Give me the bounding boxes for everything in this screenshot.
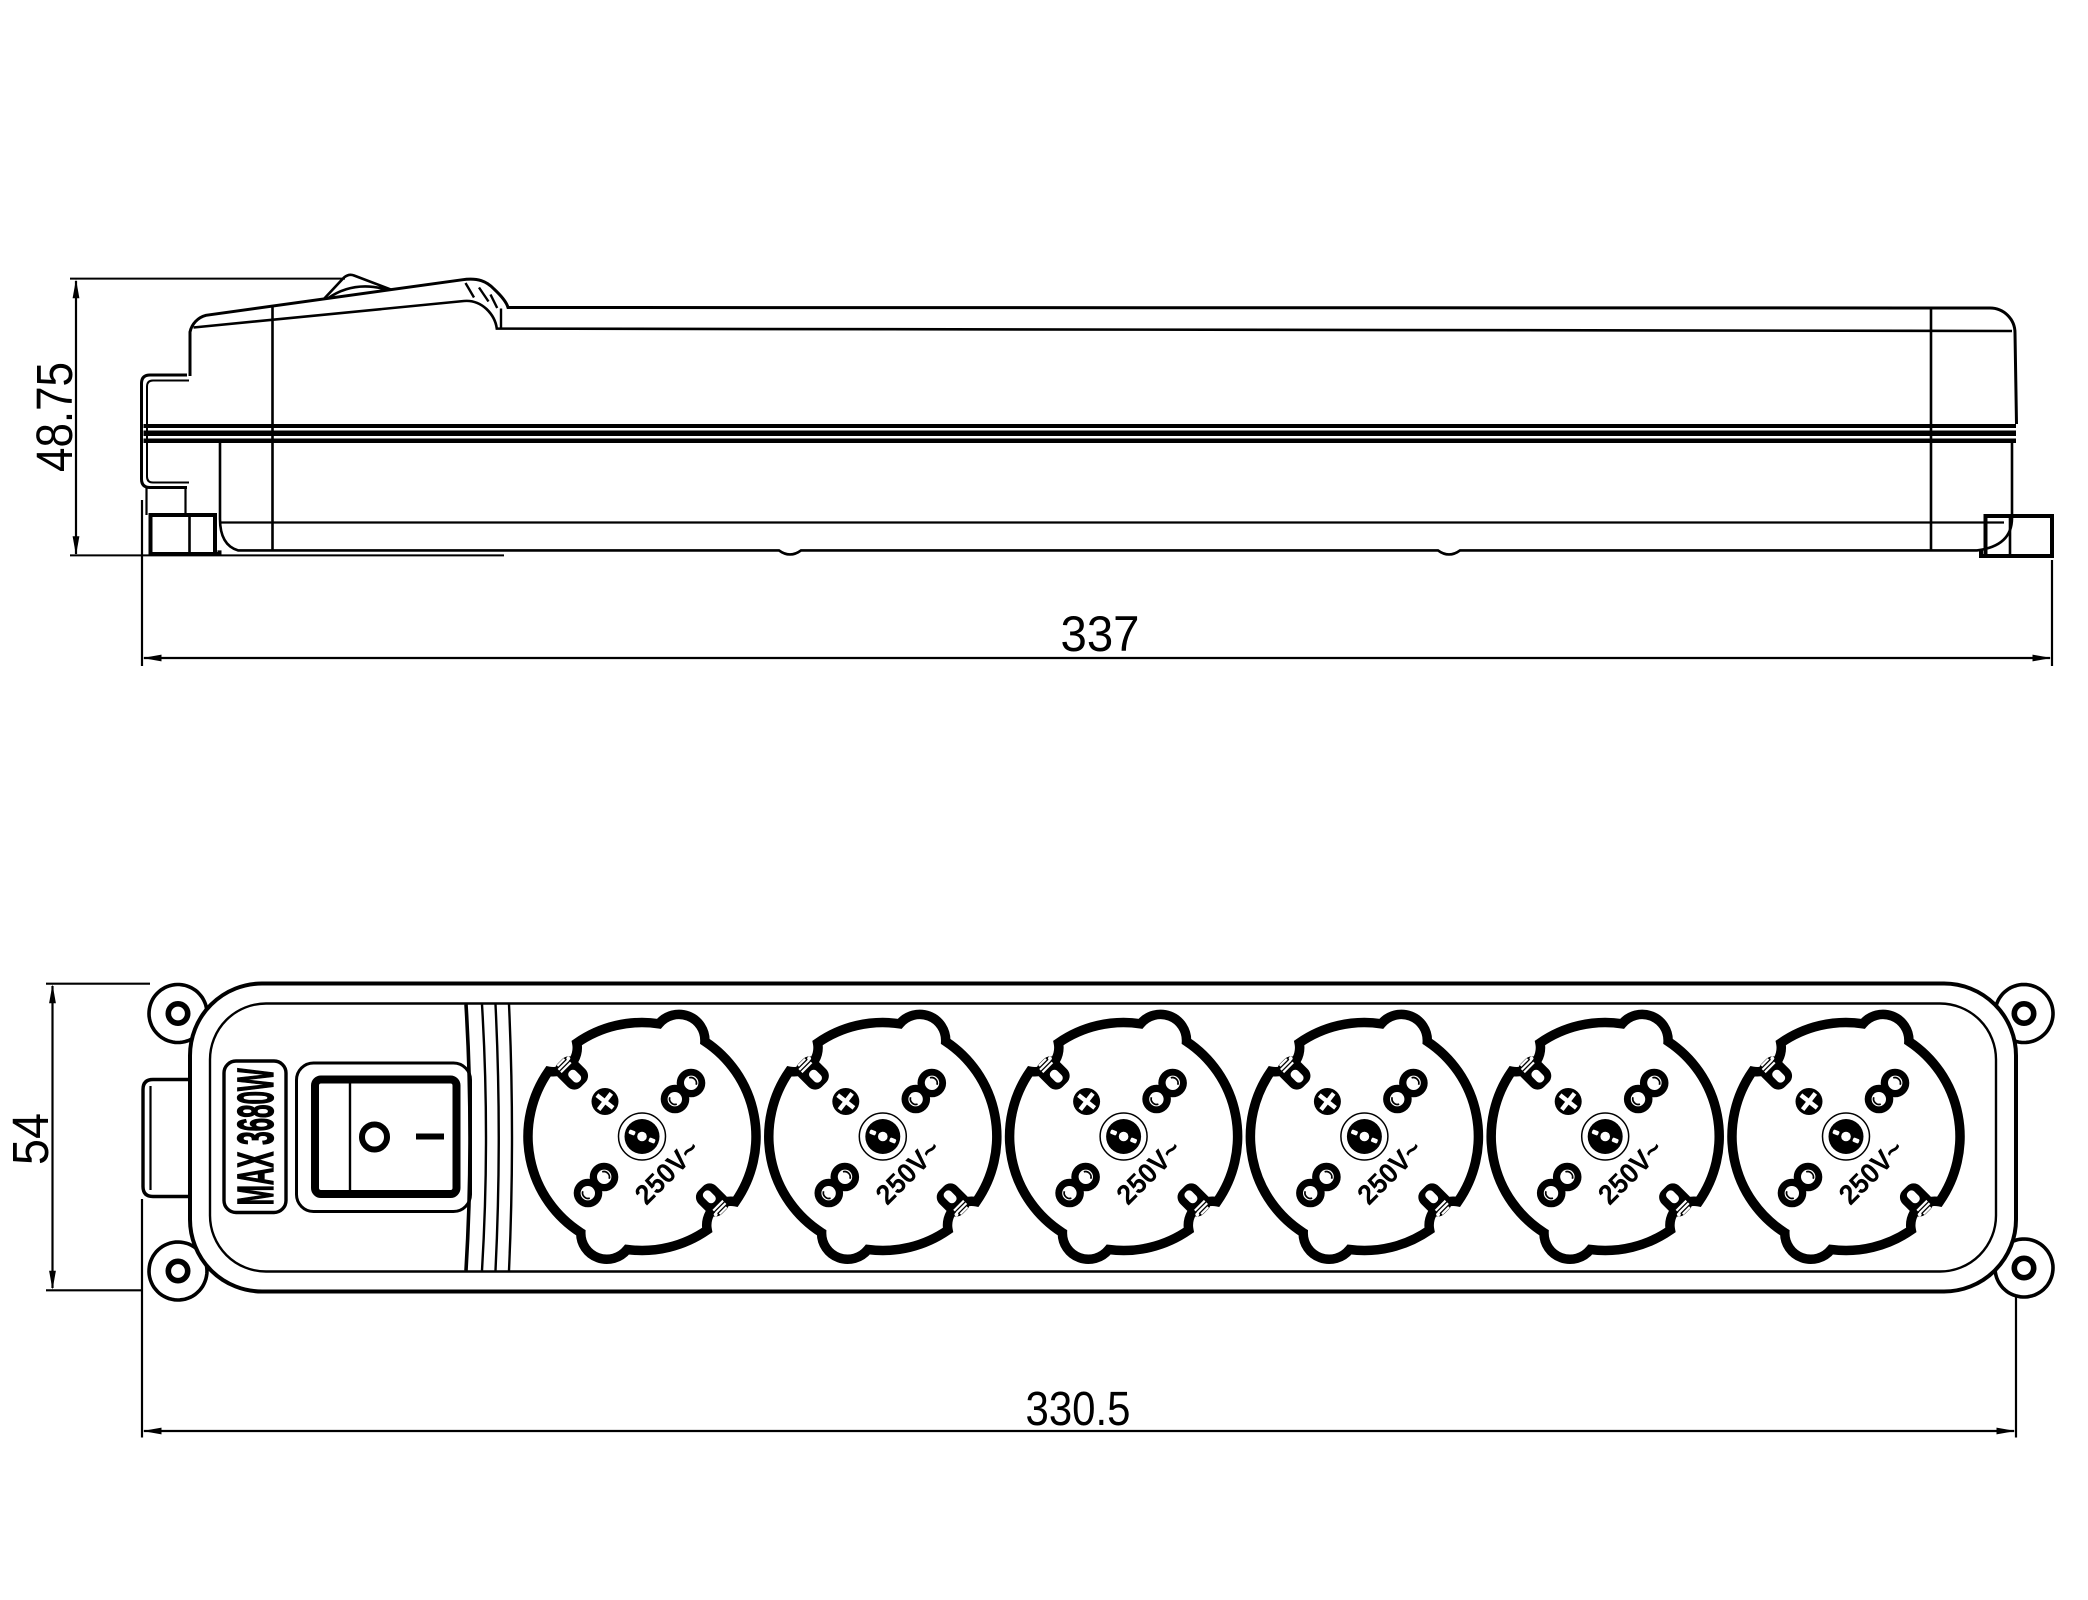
svg-text:54: 54: [2, 1113, 59, 1165]
svg-text:337: 337: [1061, 606, 1140, 662]
svg-text:MAX 3680W: MAX 3680W: [227, 1068, 284, 1205]
svg-text:330.5: 330.5: [1026, 1383, 1131, 1436]
svg-text:48.75: 48.75: [26, 362, 83, 472]
